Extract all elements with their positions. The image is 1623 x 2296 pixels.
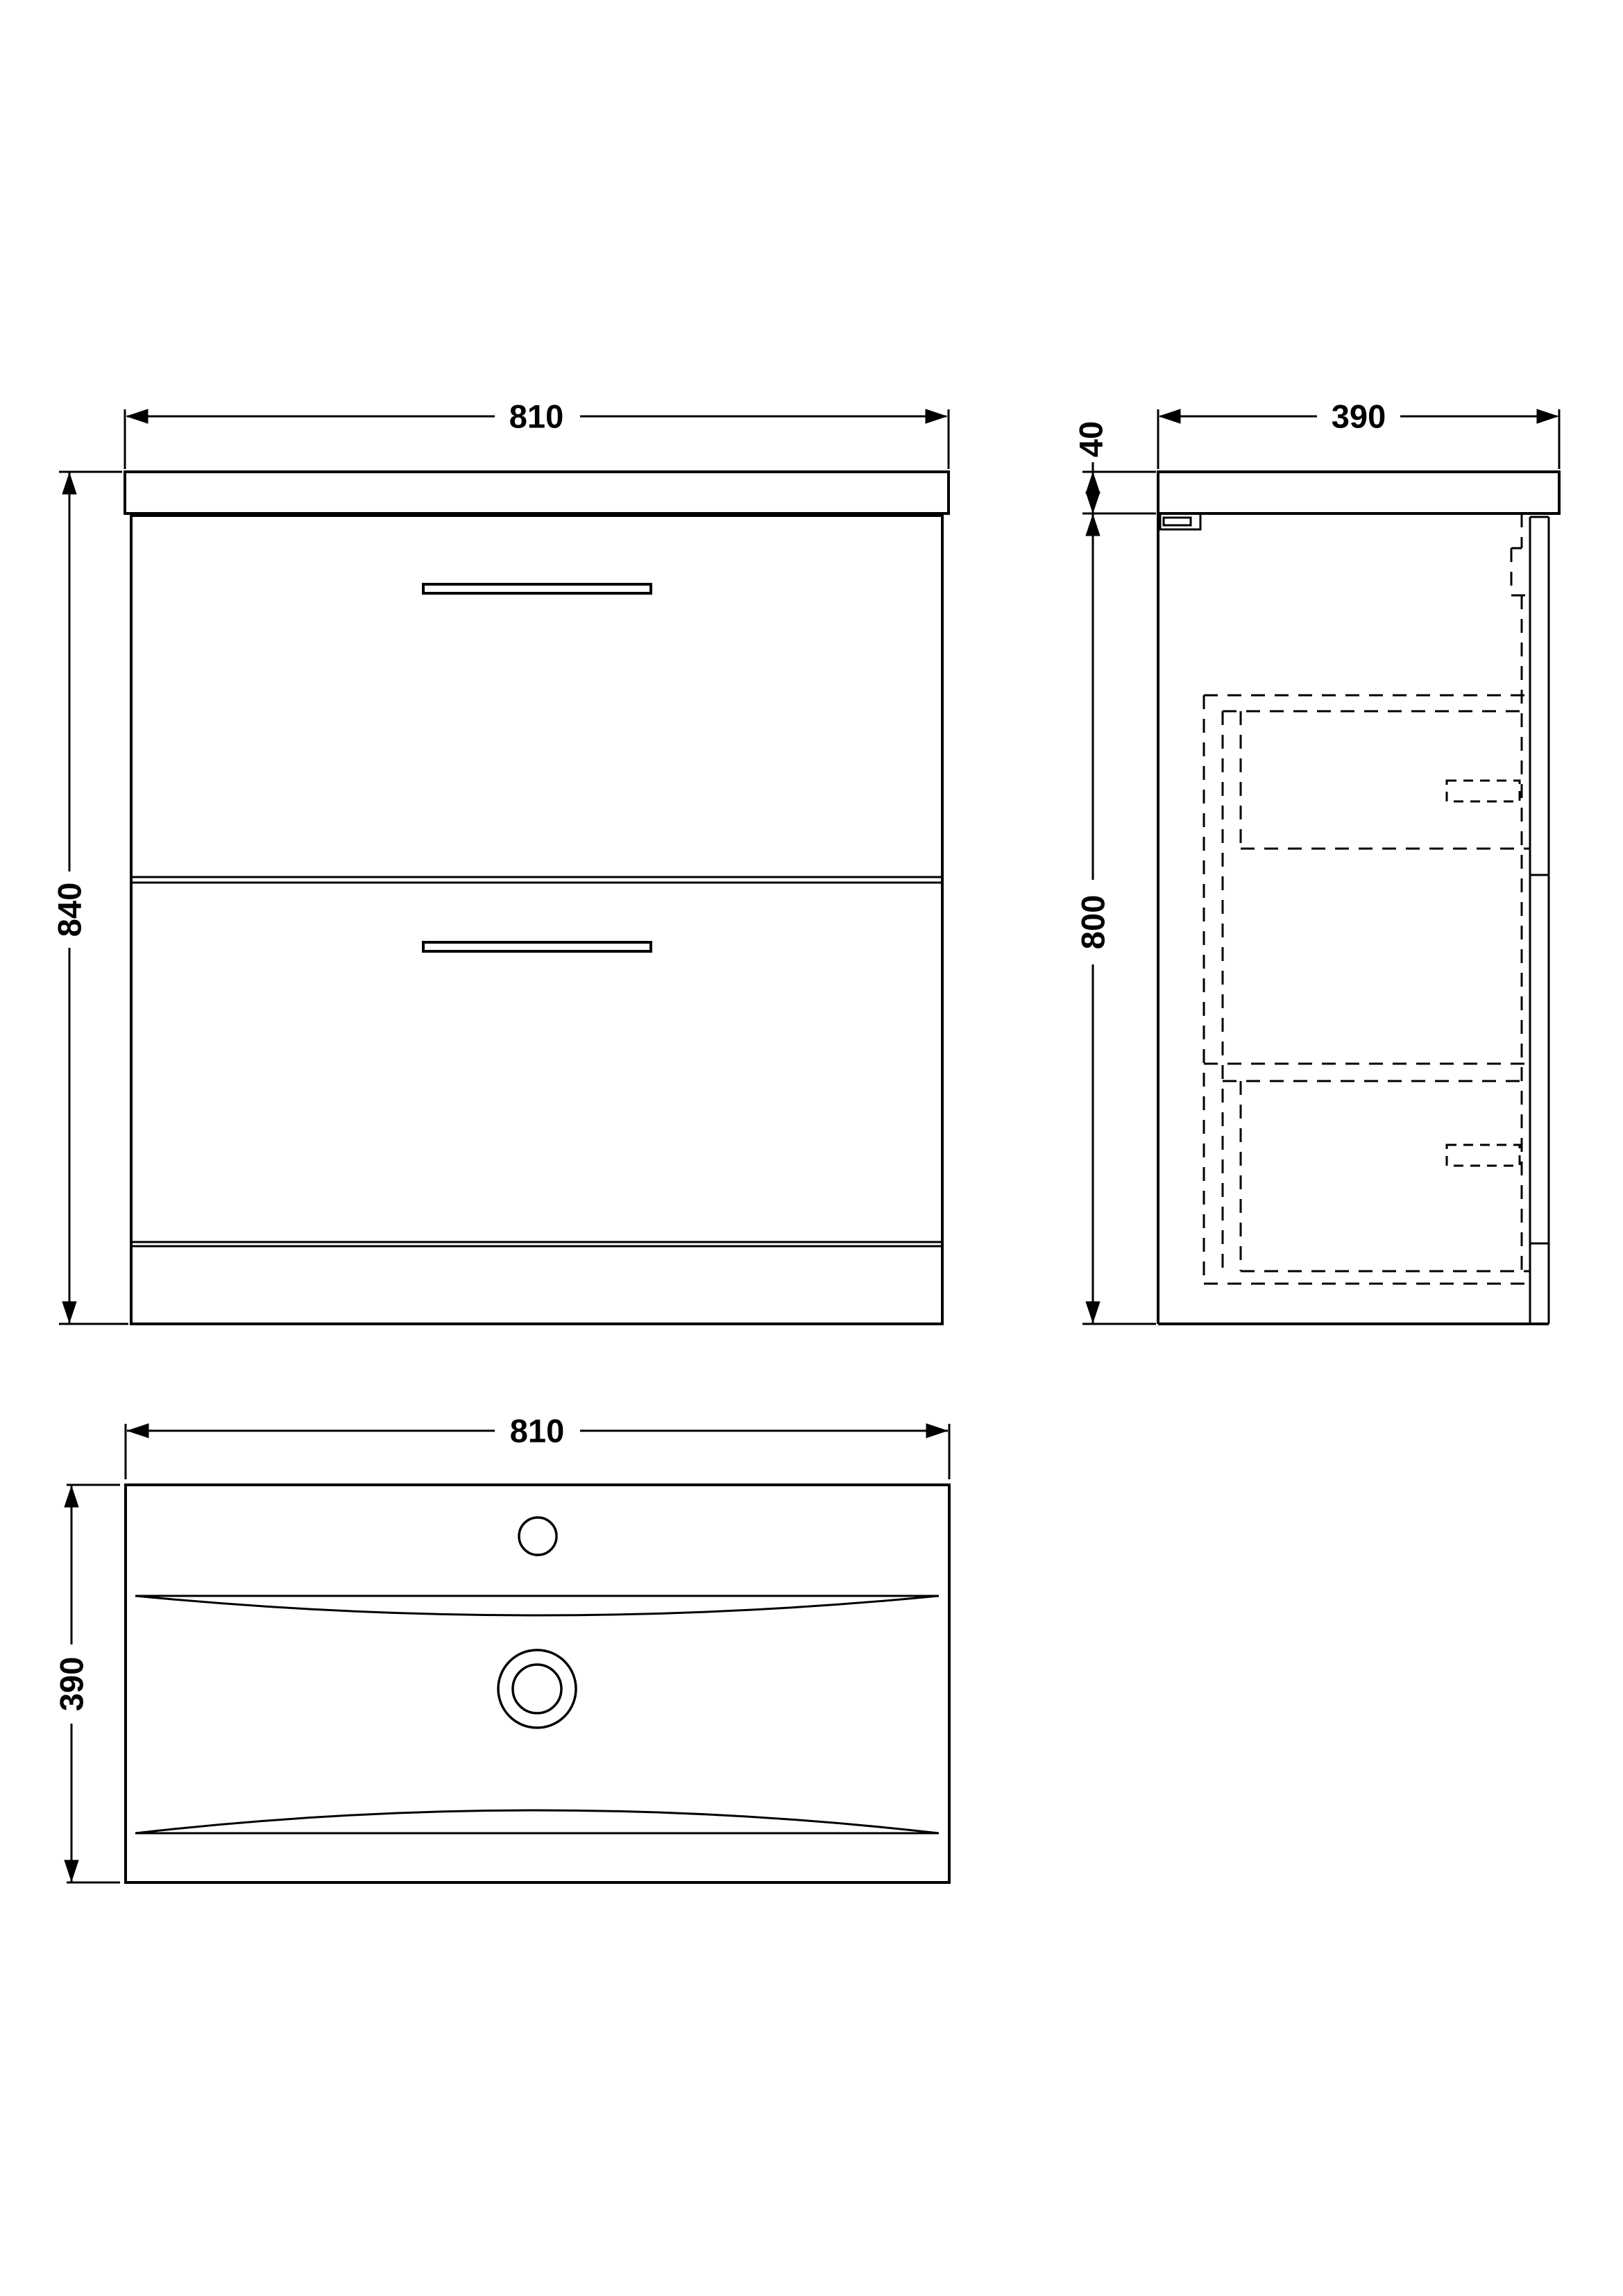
front-drawer2-handle [423,942,651,951]
wall-bracket-inner [1164,518,1191,525]
faucet-hole [519,1517,556,1555]
hidden-handle-drawer2 [1447,1145,1520,1166]
hidden-handle-drawer1 [1447,781,1520,801]
arrow-40-top [1086,473,1100,493]
arrow-810-right [926,409,946,423]
basin-front-rim-curve [135,1596,939,1615]
dim-label-front-height: 840 [52,878,87,942]
front-worktop-outline [125,472,949,513]
arrow-800-bottom [1086,1302,1100,1323]
front-drawer1-handle [423,584,651,593]
technical-drawing-page: 810 840 390 40 800 810 390 [0,0,1623,2296]
arrow-810b-right [926,1424,947,1438]
front-cabinet-outline [131,516,942,1324]
dim-label-basin-width: 810 [505,1413,569,1449]
dim-label-front-width: 810 [504,399,568,434]
arrow-40-bottom [1086,492,1100,513]
arrow-840-top [62,473,76,494]
basin-back-rim-curve [135,1810,939,1833]
dim-label-side-height: 800 [1076,890,1111,954]
front-view [59,409,949,1324]
arrow-810b-left [128,1424,148,1438]
drain-hole-outer [498,1650,576,1728]
side-worktop-outline [1158,472,1559,513]
technical-drawing-canvas [0,0,1623,2296]
basin-plan-view [65,1424,949,1882]
arrow-390b-bottom [65,1860,78,1881]
dim-label-worktop-thickness: 40 [1073,416,1109,462]
arrow-840-bottom [62,1302,76,1323]
side-view [1082,409,1559,1324]
arrow-390b-top [65,1486,78,1507]
arrow-390-left [1159,409,1180,423]
dim-label-basin-depth: 390 [54,1652,90,1716]
arrow-800-top [1086,515,1100,536]
dim-label-side-depth: 390 [1327,399,1391,434]
arrow-810-left [127,409,148,423]
wall-bracket-outer [1160,513,1200,529]
drain-hole-inner [513,1665,561,1713]
arrow-390-right [1537,409,1558,423]
